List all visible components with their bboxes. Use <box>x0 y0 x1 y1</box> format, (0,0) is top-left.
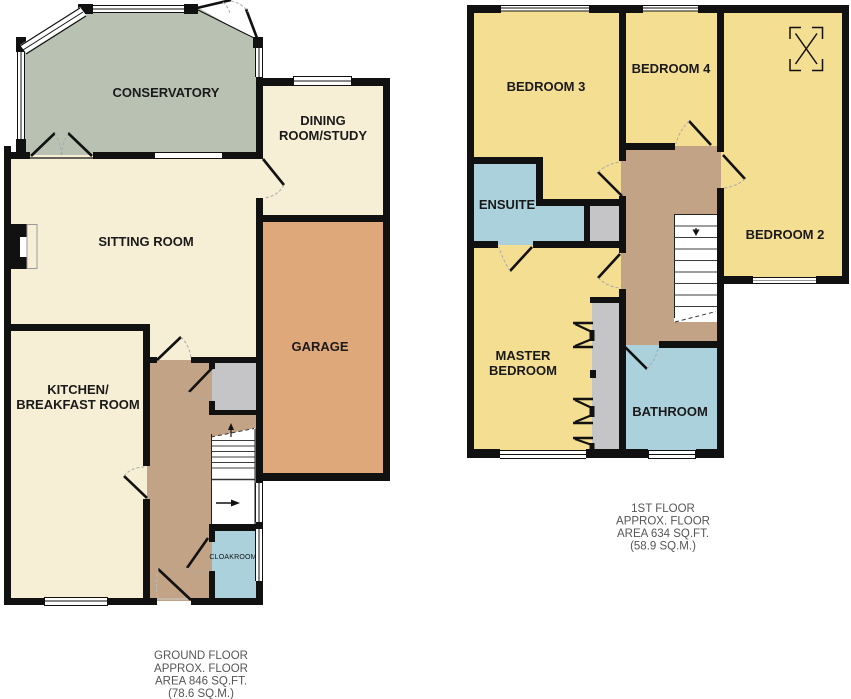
svg-text:BATHROOM: BATHROOM <box>632 404 708 419</box>
svg-text:(58.9 SQ.M.): (58.9 SQ.M.) <box>630 541 696 553</box>
svg-text:GARAGE: GARAGE <box>291 339 348 354</box>
svg-text:BEDROOM: BEDROOM <box>489 363 557 378</box>
svg-text:APPROX. FLOOR: APPROX. FLOOR <box>154 663 248 675</box>
svg-text:ROOM/STUDY: ROOM/STUDY <box>279 128 367 143</box>
svg-text:MASTER: MASTER <box>496 348 552 363</box>
svg-text:BEDROOM 4: BEDROOM 4 <box>632 61 712 76</box>
svg-text:(78.6 SQ.M.): (78.6 SQ.M.) <box>168 688 234 699</box>
svg-text:BEDROOM 2: BEDROOM 2 <box>746 227 825 242</box>
svg-text:SITTING ROOM: SITTING ROOM <box>98 234 193 249</box>
svg-text:DINING: DINING <box>300 113 346 128</box>
svg-text:GROUND FLOOR: GROUND FLOOR <box>154 650 248 662</box>
svg-text:KITCHEN/: KITCHEN/ <box>47 382 109 397</box>
svg-text:BEDROOM 3: BEDROOM 3 <box>507 79 586 94</box>
svg-text:CLOAKROOM: CLOAKROOM <box>209 554 256 561</box>
svg-text:APPROX. FLOOR: APPROX. FLOOR <box>616 516 710 528</box>
svg-text:CONSERVATORY: CONSERVATORY <box>113 85 220 100</box>
svg-text:AREA 634 SQ.FT.: AREA 634 SQ.FT. <box>617 528 709 540</box>
svg-text:ENSUITE: ENSUITE <box>479 197 536 212</box>
svg-text:1ST FLOOR: 1ST FLOOR <box>631 503 695 515</box>
svg-text:BREAKFAST ROOM: BREAKFAST ROOM <box>16 397 140 412</box>
svg-text:AREA 846 SQ.FT.: AREA 846 SQ.FT. <box>155 676 247 688</box>
